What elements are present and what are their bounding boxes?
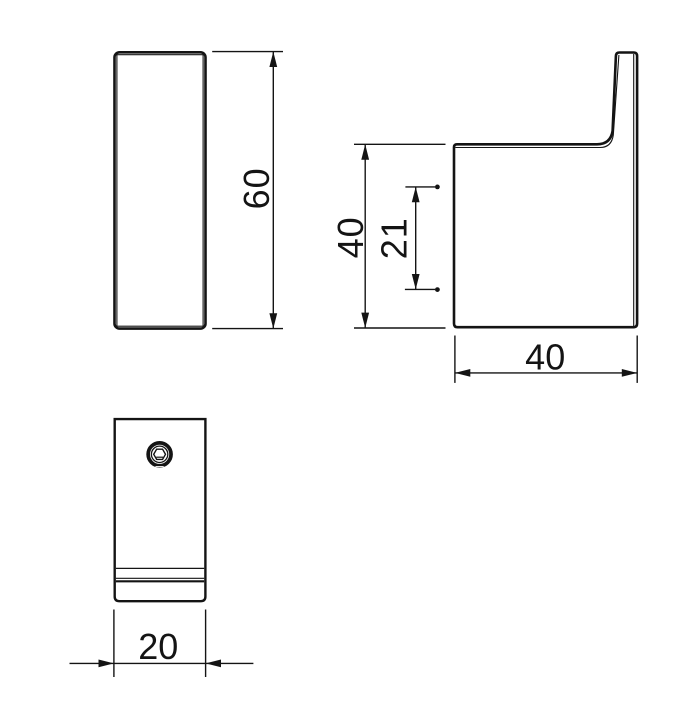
svg-text:40: 40 (525, 336, 565, 377)
svg-text:21: 21 (374, 217, 415, 259)
svg-text:20: 20 (138, 626, 178, 667)
svg-text:40: 40 (330, 216, 371, 258)
svg-text:60: 60 (236, 167, 277, 209)
